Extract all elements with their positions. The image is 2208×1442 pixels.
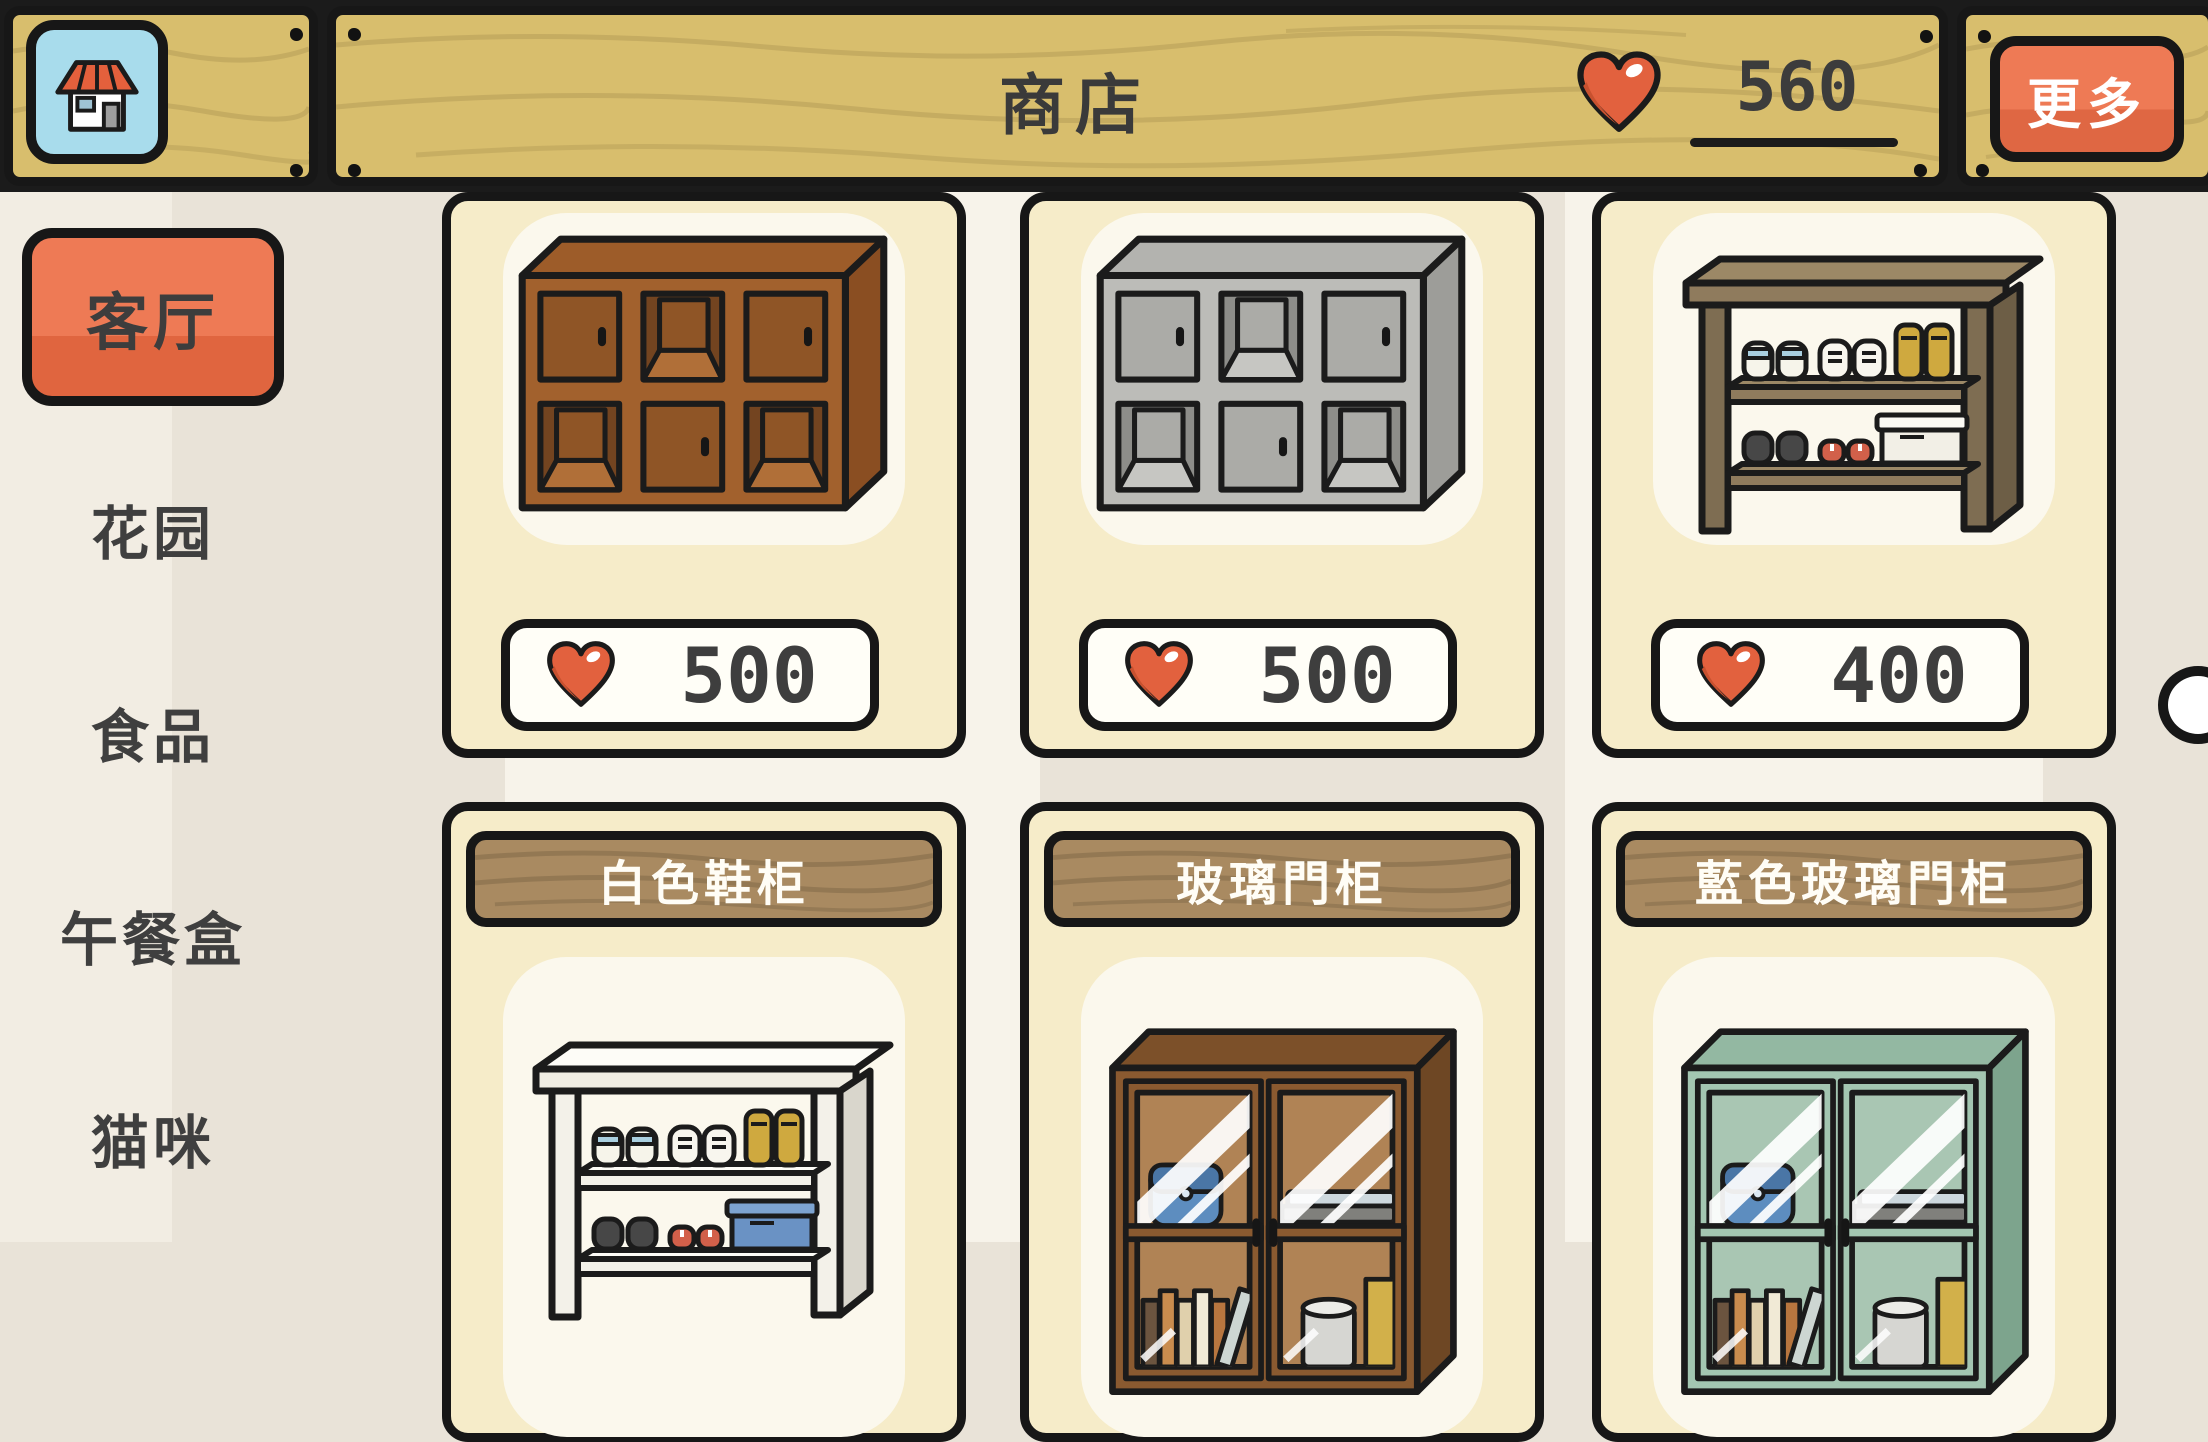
price-button[interactable]: 500 (501, 619, 879, 731)
item-name-plaque: 藍色玻璃門柜 (1616, 831, 2092, 927)
sidebar-item-lunchbox[interactable]: 午餐盒 (0, 893, 306, 977)
item-image-cube-cabinet-brown (502, 223, 906, 516)
shop-item-card[interactable]: 400 (1592, 192, 2116, 758)
heart-icon (1574, 50, 1664, 136)
sidebar-item-living-room[interactable]: 客厅 (22, 228, 284, 406)
shop-item-card[interactable]: 玻璃門柜 (1020, 802, 1544, 1442)
price-button[interactable]: 500 (1079, 619, 1457, 731)
scroll-indicator (2158, 666, 2208, 744)
nail-dot (1976, 164, 1989, 177)
page-title: 商店 (999, 52, 1151, 148)
item-image-shoe-rack-white (494, 1023, 914, 1333)
nail-dot (348, 164, 361, 177)
home-shop-button[interactable] (26, 20, 168, 164)
item-image-glass-cabinet-teal (1654, 1005, 2054, 1424)
item-image-glass-cabinet-brown (1082, 1005, 1482, 1424)
currency-underline (1690, 138, 1898, 147)
item-name-plaque: 白色鞋柜 (466, 831, 942, 927)
heart-icon (1694, 640, 1768, 710)
nail-dot (290, 28, 303, 41)
item-price: 500 (1240, 631, 1414, 720)
heart-icon (1122, 640, 1196, 710)
sidebar-item-garden[interactable]: 花园 (0, 487, 306, 571)
nail-dot (1978, 30, 1991, 43)
shop-item-card[interactable]: 藍色玻璃門柜 (1592, 802, 2116, 1442)
price-button[interactable]: 400 (1651, 619, 2029, 731)
shop-item-card[interactable]: 500 (1020, 192, 1544, 758)
heart-icon (544, 640, 618, 710)
nail-dot (1914, 164, 1927, 177)
item-price: 400 (1812, 631, 1986, 720)
nail-dot (348, 28, 361, 41)
shop-house-icon (48, 43, 146, 141)
sidebar-item-food[interactable]: 食品 (0, 690, 306, 774)
shop-item-card[interactable]: 白色鞋柜 (442, 802, 966, 1442)
item-price: 500 (662, 631, 836, 720)
currency-amount: 560 (1694, 48, 1900, 127)
nail-dot (1920, 30, 1933, 43)
sidebar-item-cats[interactable]: 猫咪 (0, 1096, 306, 1180)
item-name: 白色鞋柜 (598, 844, 810, 914)
shop-item-card[interactable]: 500 (442, 192, 966, 758)
item-image-cube-cabinet-gray (1080, 223, 1484, 516)
more-button[interactable]: 更多 (1990, 36, 2184, 162)
item-image-shoe-rack-wood (1644, 237, 2064, 547)
item-name: 藍色玻璃門柜 (1695, 844, 2013, 914)
item-name: 玻璃門柜 (1176, 844, 1388, 914)
nail-dot (290, 164, 303, 177)
item-name-plaque: 玻璃門柜 (1044, 831, 1520, 927)
